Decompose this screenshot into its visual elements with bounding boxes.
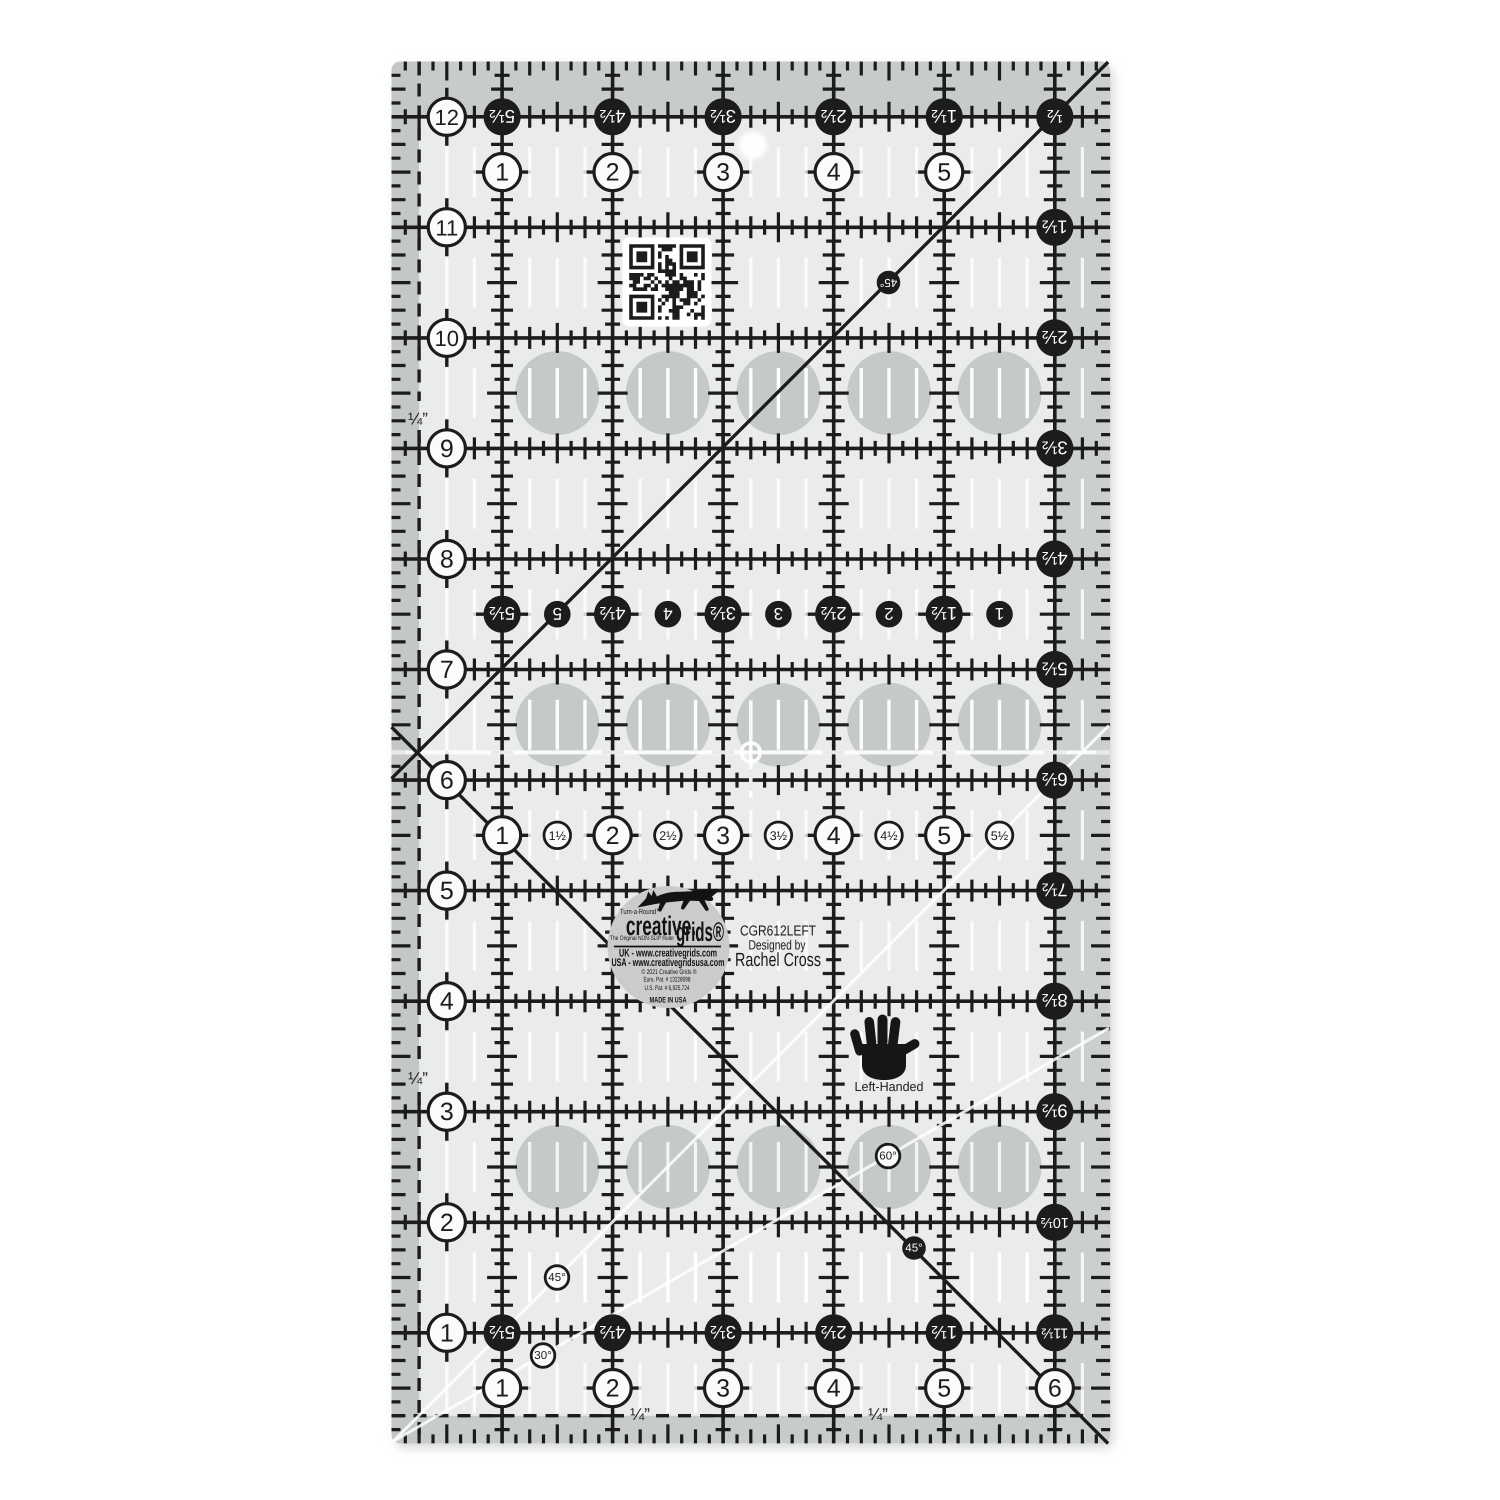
svg-text:3½: 3½ [710, 603, 736, 624]
svg-text:1½: 1½ [1042, 216, 1068, 237]
svg-text:¼”: ¼” [630, 1405, 650, 1424]
svg-text:2½: 2½ [821, 106, 847, 127]
svg-text:3: 3 [774, 604, 783, 623]
svg-text:4½: 4½ [600, 1322, 626, 1343]
svg-text:5½: 5½ [489, 106, 515, 127]
svg-text:9: 9 [440, 435, 454, 463]
svg-text:1½: 1½ [931, 1322, 957, 1343]
svg-text:6: 6 [1048, 1375, 1062, 1403]
svg-text:4: 4 [827, 159, 841, 187]
svg-text:2: 2 [606, 1375, 620, 1403]
svg-text:The Original NON-SLIP Ruler: The Original NON-SLIP Ruler [610, 935, 675, 942]
svg-text:4½: 4½ [1042, 548, 1068, 569]
svg-text:11½: 11½ [1041, 1324, 1068, 1340]
svg-text:1: 1 [495, 159, 509, 187]
svg-text:30°: 30° [534, 1350, 551, 1362]
svg-text:3: 3 [716, 159, 730, 187]
svg-text:3½: 3½ [1042, 437, 1068, 458]
svg-text:60°: 60° [879, 1151, 896, 1163]
svg-text:7: 7 [440, 656, 454, 684]
svg-text:USA - www.creativegridsusa.com: USA - www.creativegridsusa.com [612, 957, 725, 969]
svg-text:4½: 4½ [880, 829, 898, 843]
svg-text:1½: 1½ [549, 829, 567, 843]
svg-text:1: 1 [495, 1375, 509, 1403]
svg-text:8½: 8½ [1042, 990, 1068, 1011]
svg-text:2: 2 [440, 1209, 454, 1237]
svg-text:5: 5 [440, 877, 454, 905]
svg-text:45°: 45° [548, 1272, 565, 1284]
svg-text:grids®: grids® [676, 917, 724, 947]
svg-text:¼”: ¼” [408, 1069, 428, 1088]
svg-text:6: 6 [440, 767, 454, 795]
svg-text:5: 5 [937, 822, 951, 850]
svg-text:3: 3 [440, 1098, 454, 1126]
svg-text:Left-Handed: Left-Handed [855, 1079, 924, 1094]
svg-text:Euro. Pat. # 13228098: Euro. Pat. # 13228098 [644, 977, 691, 984]
svg-text:2½: 2½ [1042, 327, 1068, 348]
svg-text:Rachel Cross: Rachel Cross [735, 950, 821, 971]
svg-text:2½: 2½ [659, 829, 677, 843]
svg-text:MADE IN USA: MADE IN USA [650, 996, 687, 1005]
svg-text:4: 4 [827, 1375, 841, 1403]
svg-text:1½: 1½ [931, 106, 957, 127]
svg-text:7½: 7½ [1042, 880, 1068, 901]
svg-text:11: 11 [435, 215, 458, 240]
svg-text:4: 4 [663, 604, 672, 623]
svg-text:¼”: ¼” [868, 1405, 888, 1424]
svg-text:2½: 2½ [821, 1322, 847, 1343]
svg-text:5½: 5½ [489, 1322, 515, 1343]
svg-text:45°: 45° [905, 1243, 922, 1255]
svg-text:4½: 4½ [600, 106, 626, 127]
svg-text:10½: 10½ [1041, 1214, 1069, 1230]
svg-text:10: 10 [435, 326, 459, 351]
svg-text:3½: 3½ [770, 829, 788, 843]
svg-text:5: 5 [553, 604, 562, 623]
svg-text:45°: 45° [880, 276, 897, 288]
svg-text:5: 5 [937, 159, 951, 187]
svg-text:2: 2 [606, 822, 620, 850]
svg-text:9½: 9½ [1042, 1101, 1068, 1122]
svg-text:2: 2 [606, 159, 620, 187]
svg-text:2½: 2½ [821, 603, 847, 624]
svg-text:4½: 4½ [600, 603, 626, 624]
svg-text:¼”: ¼” [408, 410, 428, 429]
svg-text:3: 3 [716, 1375, 730, 1403]
svg-text:2: 2 [884, 604, 893, 623]
svg-text:3½: 3½ [710, 1322, 736, 1343]
svg-text:1: 1 [995, 604, 1004, 623]
svg-text:5½: 5½ [991, 829, 1009, 843]
svg-text:5½: 5½ [489, 603, 515, 624]
svg-text:4: 4 [827, 822, 841, 850]
svg-text:1: 1 [440, 1319, 454, 1347]
svg-text:1: 1 [495, 822, 509, 850]
svg-text:5: 5 [937, 1375, 951, 1403]
svg-text:1½: 1½ [931, 603, 957, 624]
svg-text:U.S. Pat. # 6,925,724: U.S. Pat. # 6,925,724 [645, 985, 690, 992]
svg-text:½: ½ [1047, 106, 1062, 127]
svg-text:6½: 6½ [1042, 769, 1068, 790]
svg-text:12: 12 [435, 105, 459, 130]
svg-text:3½: 3½ [710, 106, 736, 127]
svg-text:3: 3 [716, 822, 730, 850]
svg-text:5½: 5½ [1042, 659, 1068, 680]
svg-text:4: 4 [440, 988, 454, 1016]
svg-text:© 2021 Creative Grids ®: © 2021 Creative Grids ® [642, 969, 697, 976]
svg-text:8: 8 [440, 546, 454, 574]
